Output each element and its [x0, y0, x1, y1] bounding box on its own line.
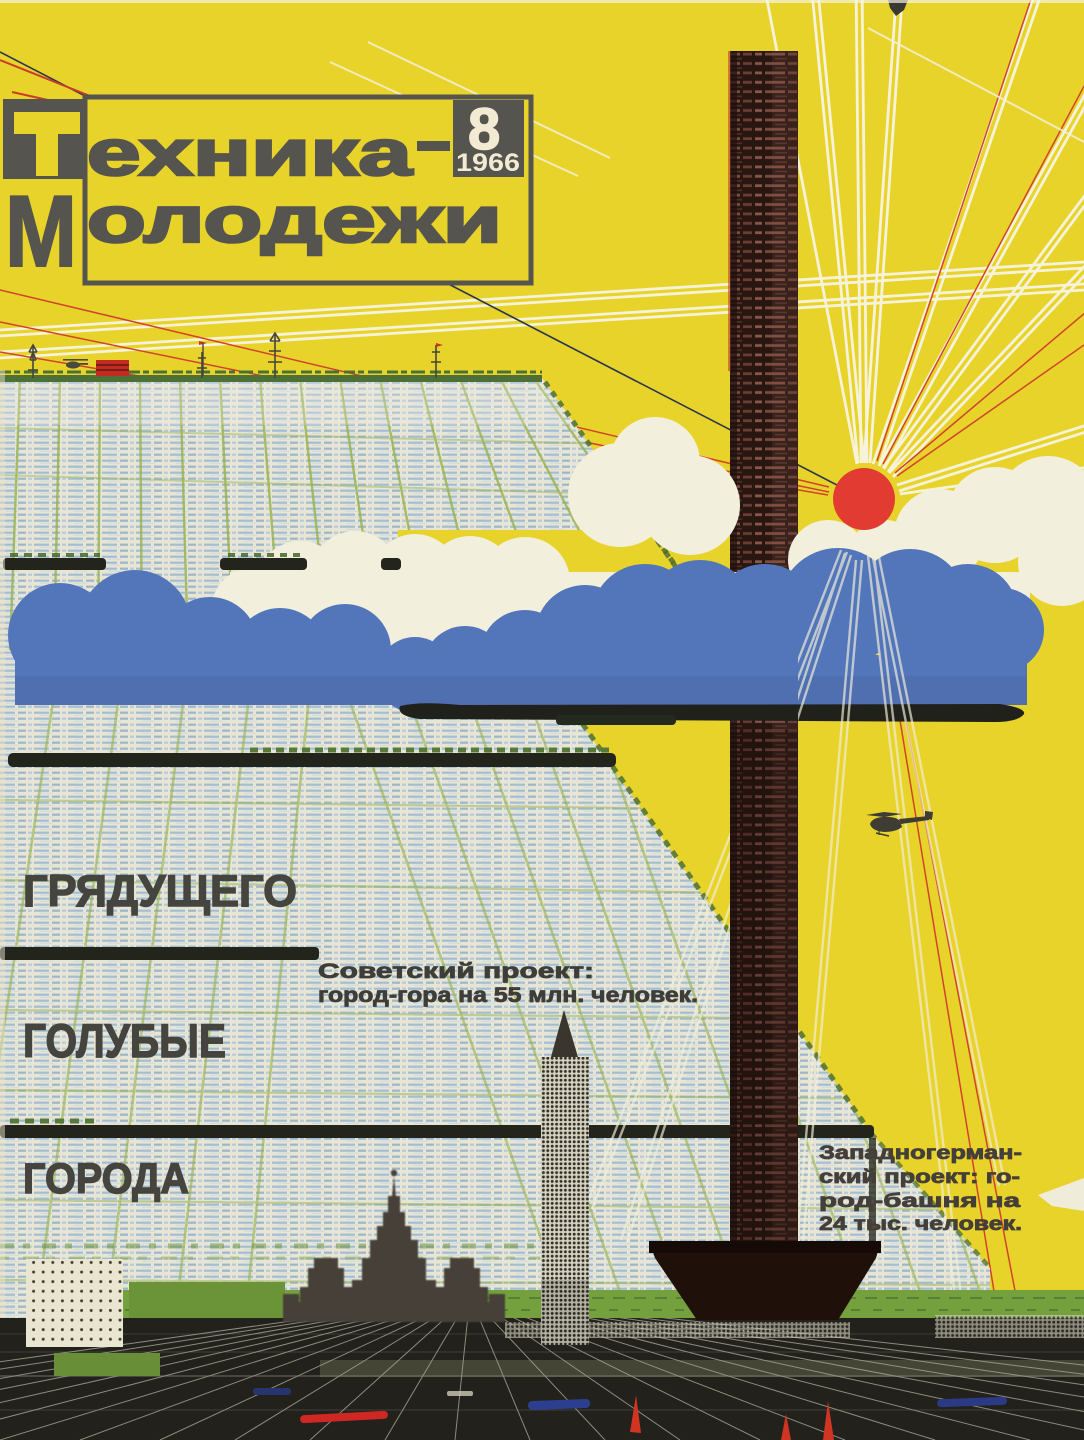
svg-text:Западногерман-: Западногерман-	[819, 1142, 1022, 1164]
svg-text:ГОЛУБЫЕ: ГОЛУБЫЕ	[23, 1014, 226, 1067]
svg-text:олодежи: олодежи	[87, 183, 502, 256]
svg-text:род-башня на: род-башня на	[819, 1190, 1020, 1212]
svg-text:1966: 1966	[456, 149, 520, 177]
svg-text:Советский проект:: Советский проект:	[318, 959, 594, 983]
svg-text:ский проект: го-: ский проект: го-	[819, 1166, 1020, 1188]
svg-text:М: М	[5, 176, 77, 288]
svg-text:ГРЯДУЩЕГО: ГРЯДУЩЕГО	[23, 867, 297, 916]
svg-text:24 тыс. человек.: 24 тыс. человек.	[819, 1213, 1022, 1235]
svg-text:ехника: ехника	[87, 116, 413, 189]
svg-text:ГОРОДА: ГОРОДА	[23, 1155, 189, 1203]
svg-text:город-гора на 55 млн. человек.: город-гора на 55 млн. человек.	[318, 983, 698, 1007]
